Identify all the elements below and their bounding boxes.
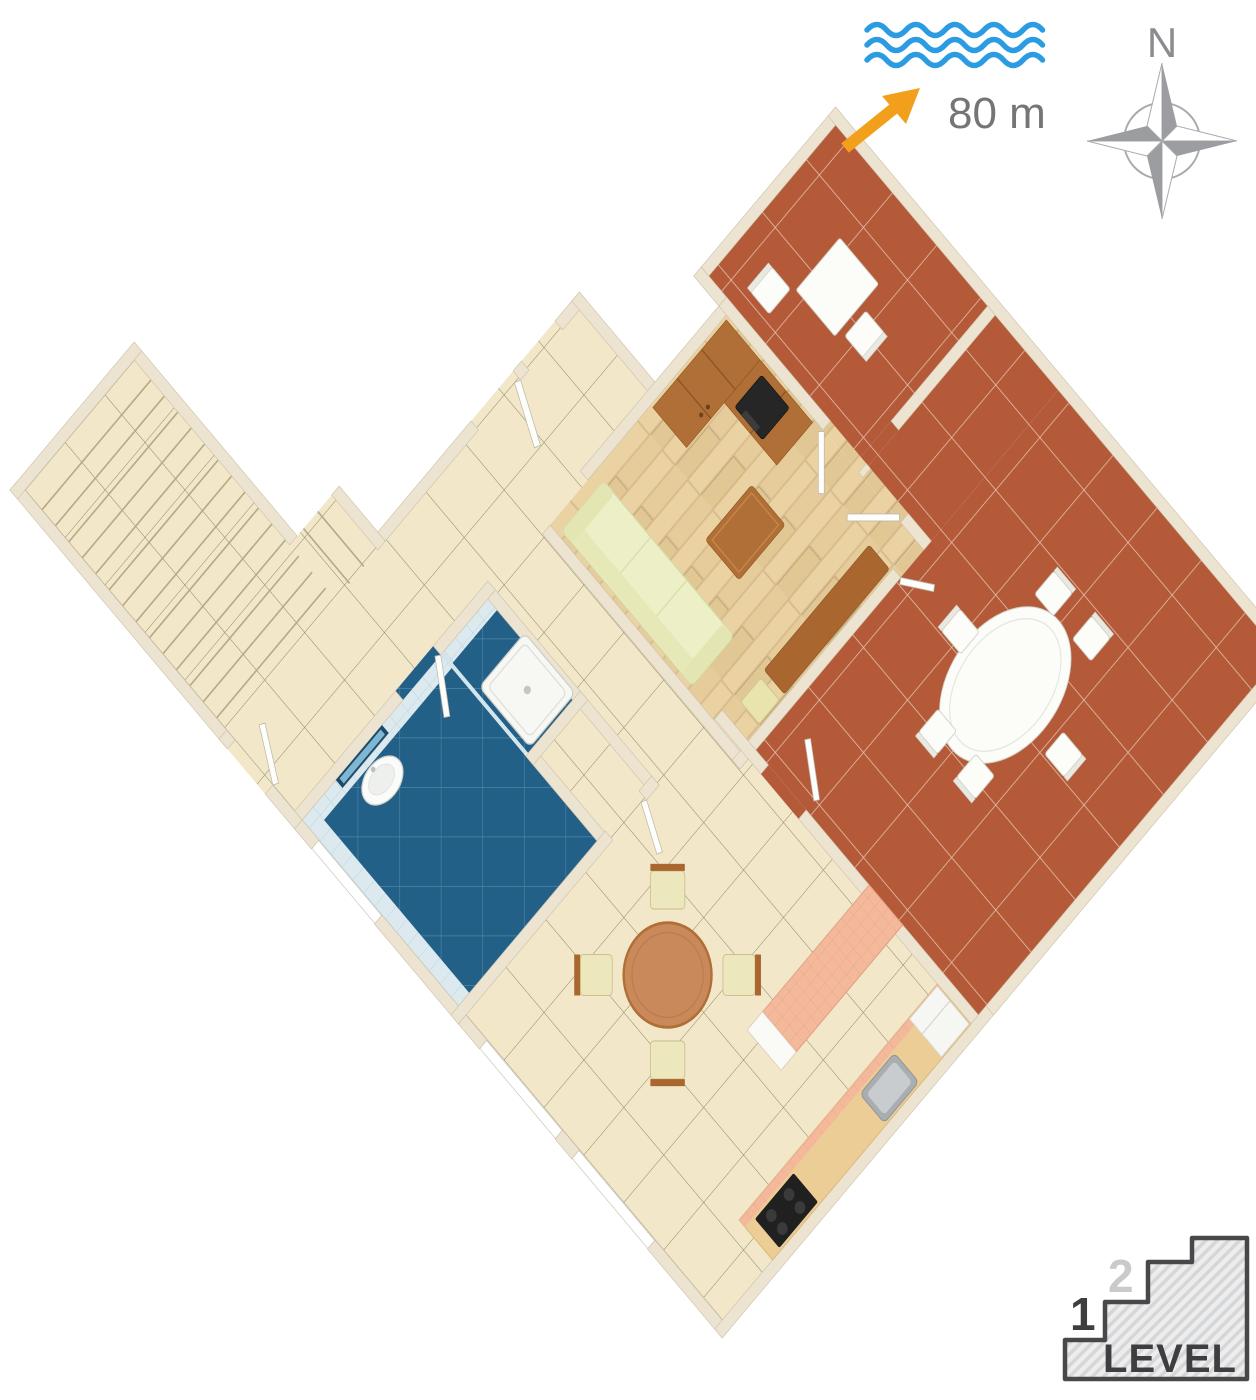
sea-direction-arrow-icon [845, 88, 920, 148]
dining-chair [650, 864, 684, 909]
sea-distance-label: 80 m [948, 89, 1046, 138]
dining-chair [723, 954, 761, 995]
compass-star-icon [1087, 63, 1237, 219]
compass-north-label: N [1147, 19, 1177, 66]
level-label: LEVEL [1103, 1337, 1237, 1381]
level-1-label: 1 [1070, 1288, 1096, 1340]
floor-plan [10, 0, 1256, 1338]
terrace-french-door-1 [818, 432, 824, 494]
dining-chair [574, 954, 612, 995]
sea-distance-indicator: 80 m [845, 25, 1046, 149]
terrace-french-door-2 [847, 514, 899, 521]
compass-rose: N [1087, 19, 1237, 219]
level-indicator: 1 2 LEVEL [1065, 1238, 1247, 1381]
apartment-floor-plan-3d: 80 m N 1 2 LEVEL [0, 0, 1256, 1400]
floor-plan-page: 80 m N 1 2 LEVEL [0, 0, 1256, 1400]
dining-chair [650, 1041, 684, 1086]
waves-icon [867, 25, 1043, 66]
level-2-label: 2 [1108, 1250, 1134, 1302]
